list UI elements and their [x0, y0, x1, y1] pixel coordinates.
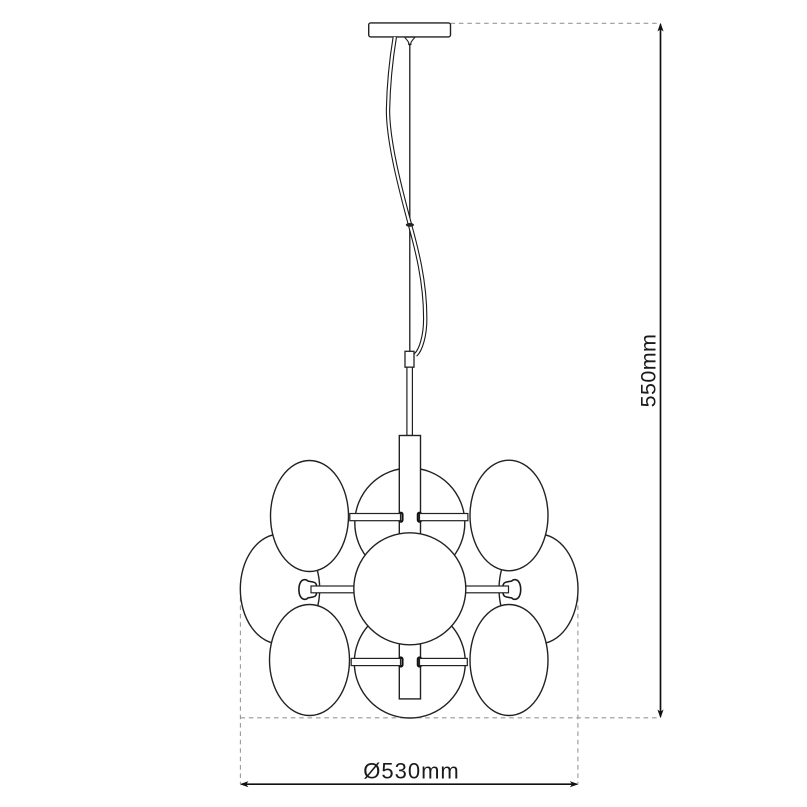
svg-text:Ø530mm: Ø530mm: [363, 759, 459, 784]
svg-text:550mm: 550mm: [637, 334, 661, 408]
